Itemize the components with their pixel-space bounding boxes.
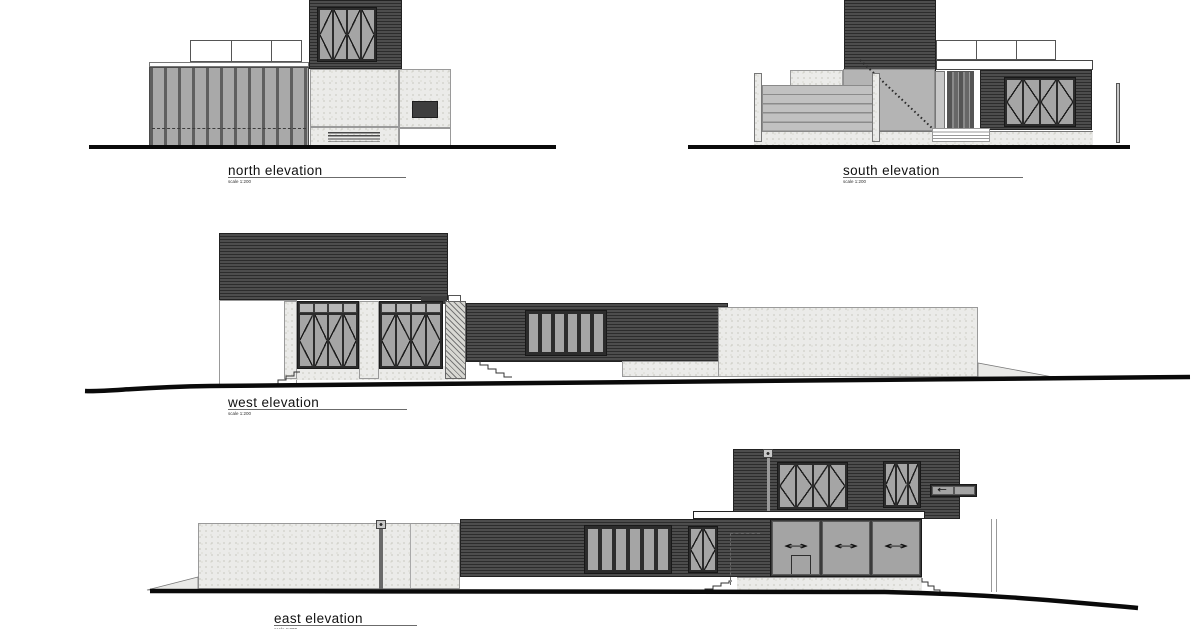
elevation-drawing-sheet: north elevation scale 1:200 south ele: [0, 0, 1200, 629]
west-pier-left: [284, 301, 297, 379]
south-fascia-band: [936, 60, 1093, 70]
folding-window-pane: [886, 464, 895, 505]
east-ramp-wedge: [147, 577, 198, 590]
east-steps-left: [705, 581, 732, 592]
south-elevation-label: south elevation: [843, 164, 940, 178]
west-upper-clad-box: [219, 233, 448, 300]
north-louver-dashed-line: [152, 128, 306, 129]
north-label-underline: [228, 177, 406, 178]
east-label-underline: [274, 625, 417, 626]
west-ramp-wedge: [978, 363, 1053, 377]
east-ground-line: [150, 591, 1138, 608]
transom-pane: [300, 304, 313, 312]
window-pane: [644, 529, 654, 570]
west-folding-door-2: [379, 301, 443, 369]
east-wall-edge-double-line: [991, 519, 997, 592]
west-folding-door-1: [297, 301, 359, 369]
east-sliding-glass-doors: ↔ ↔ ↔: [770, 519, 922, 577]
folding-door-pane: [1041, 80, 1056, 124]
folding-door-panes: [381, 314, 441, 367]
transom-pane: [315, 304, 328, 312]
window-pane: [594, 314, 603, 352]
window-pane: [588, 529, 598, 570]
folding-door-pane: [315, 315, 328, 366]
south-fence-post-left: [754, 73, 762, 142]
folding-door-pane: [362, 10, 374, 59]
south-entry-door-strip: [935, 71, 945, 129]
window-pane: [542, 314, 551, 352]
north-roof-outline: [190, 40, 302, 62]
slide-direction-arrow-icon: ↔: [833, 540, 859, 551]
window-pane: [658, 529, 668, 570]
folding-window-pane: [909, 464, 918, 505]
north-roof-outline-divider: [231, 40, 232, 62]
window-pane: [616, 529, 626, 570]
north-base-band-right: [399, 128, 451, 146]
east-upper-flue-cap: [763, 449, 773, 458]
south-ground-line: [688, 145, 1130, 149]
folding-door-pane: [814, 465, 829, 507]
south-scale-note: scale 1:200: [843, 179, 866, 184]
south-fence-post-right: [872, 73, 880, 142]
west-scale-note: scale 1:200: [228, 411, 251, 416]
north-ground-line: [89, 145, 556, 149]
east-elevation-label: east elevation: [274, 612, 363, 626]
east-upper-folding-door: [777, 462, 848, 510]
folding-window-pane: [691, 529, 702, 570]
folding-door-pane: [797, 465, 812, 507]
east-flue-post: [379, 524, 383, 589]
north-elevation-label: north elevation: [228, 164, 323, 178]
door-leaf-outline: [791, 555, 811, 574]
north-louver-screen: [149, 67, 309, 146]
west-masonry-pier: [445, 301, 466, 379]
folding-door-pane: [300, 315, 313, 366]
north-render-wall-right: [399, 69, 451, 128]
east-white-wall: [922, 519, 995, 591]
window-pane: [568, 314, 577, 352]
folding-door-pane: [348, 10, 360, 59]
transom-pane: [329, 304, 342, 312]
east-folding-window-2panel: [688, 526, 718, 573]
east-door-plinth: [737, 577, 922, 592]
folding-window-pane: [704, 529, 715, 570]
west-steps-mid: [480, 361, 512, 377]
west-clerestory-window: [525, 310, 607, 356]
window-pane: [581, 314, 590, 352]
window-pane: [529, 314, 538, 352]
sliding-door-pane: ↔: [873, 522, 919, 574]
east-clerestory-window: [584, 525, 672, 574]
east-flue-cap: [376, 520, 386, 529]
south-roof-outline-divider: [976, 40, 977, 60]
folding-window-pane: [897, 464, 906, 505]
sliding-window-pane: [955, 487, 975, 494]
folding-door-pane: [427, 315, 440, 366]
transom-pane: [397, 304, 410, 312]
north-upper-folding-door: [317, 7, 377, 62]
south-upper-clad-box: [844, 0, 936, 72]
west-label-underline: [228, 409, 407, 410]
folding-door-pane: [344, 315, 357, 366]
slide-direction-arrow-icon: ↔: [883, 540, 909, 551]
folding-door-pane: [329, 315, 342, 366]
south-flue-post: [1116, 83, 1120, 143]
south-folding-door: [1004, 77, 1076, 127]
south-dark-panel-strip: [947, 71, 974, 129]
north-scale-note: scale 1:200: [228, 179, 251, 184]
west-wing-plinth: [622, 361, 728, 377]
east-folding-window-3panel: [883, 461, 921, 508]
folding-door-pane: [382, 315, 395, 366]
east-fascia-band: [693, 511, 925, 519]
folding-door-pane: [830, 465, 845, 507]
north-render-wall-left: [310, 69, 399, 127]
window-pane: [555, 314, 564, 352]
folding-door-panes: [299, 314, 357, 367]
transom-pane: [382, 304, 395, 312]
folding-door-pane: [1007, 80, 1022, 124]
sliding-window-pane: ←: [933, 487, 953, 494]
east-wall-joint-line: [410, 524, 411, 588]
transom-lights: [299, 303, 357, 313]
folding-door-pane: [780, 465, 795, 507]
north-small-window: [412, 101, 438, 118]
folding-door-pane: [320, 10, 332, 59]
window-pane: [630, 529, 640, 570]
south-roof-outline-divider: [1016, 40, 1017, 60]
sliding-door-pane: ↔: [773, 522, 819, 574]
south-fence-boards: [762, 85, 873, 132]
west-elevation-label: west elevation: [228, 396, 319, 410]
sliding-door-pane: ↔: [823, 522, 869, 574]
transom-lights: [381, 303, 441, 313]
transom-pane: [427, 304, 440, 312]
east-sliding-window-small: ←: [930, 484, 977, 497]
folding-door-pane: [397, 315, 410, 366]
slide-direction-arrow-icon: ↔: [783, 540, 809, 551]
slide-direction-arrow-icon: ←: [937, 486, 947, 495]
east-boundary-wall: [198, 523, 460, 589]
folding-door-pane: [334, 10, 346, 59]
west-boundary-wall: [718, 307, 978, 377]
window-pane: [602, 529, 612, 570]
transom-pane: [344, 304, 357, 312]
east-upper-flue-post: [767, 449, 770, 519]
west-pier-mid: [359, 301, 379, 379]
north-vent-grille: [328, 132, 380, 142]
folding-door-pane: [412, 315, 425, 366]
folding-door-pane: [1058, 80, 1073, 124]
transom-pane: [412, 304, 425, 312]
south-steps: [932, 128, 990, 142]
south-roof-outline: [936, 40, 1056, 60]
south-label-underline: [843, 177, 1023, 178]
folding-door-pane: [1024, 80, 1039, 124]
north-roof-outline-divider: [271, 40, 272, 62]
